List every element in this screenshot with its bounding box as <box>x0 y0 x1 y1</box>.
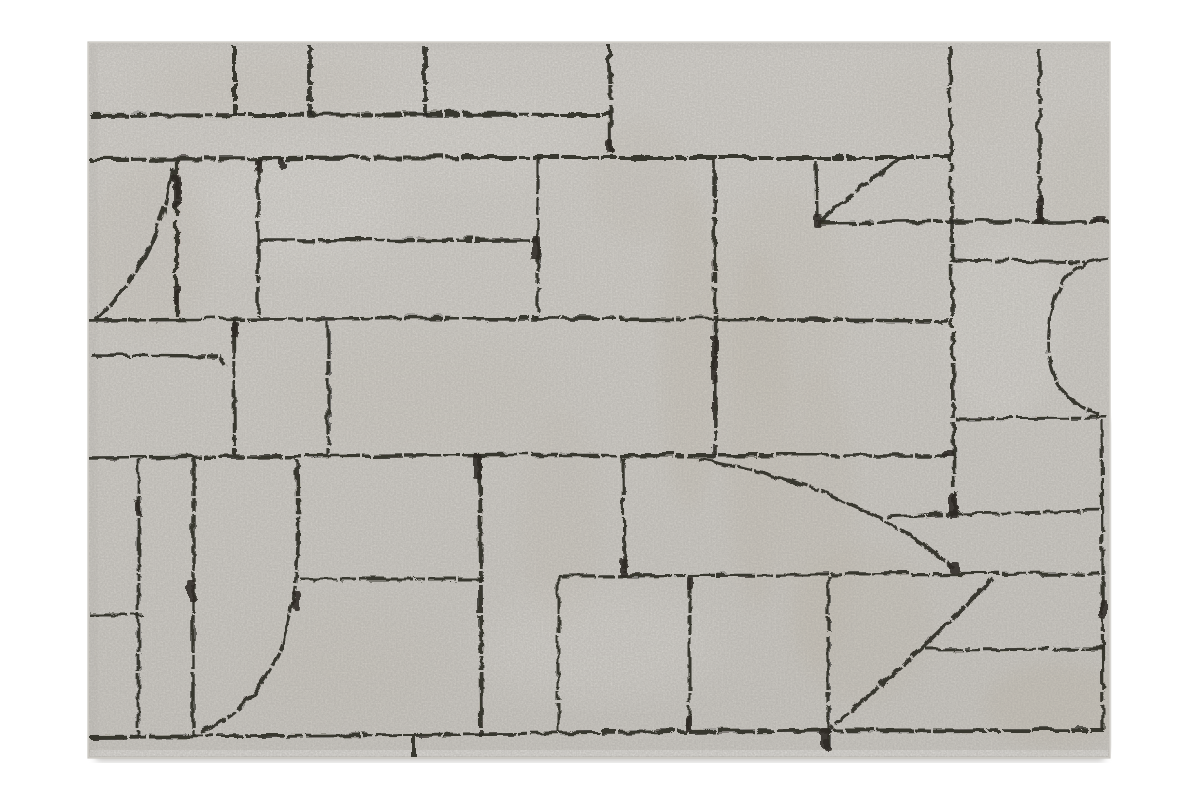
ink-blob <box>604 138 612 152</box>
ink-blob <box>811 212 820 226</box>
carpet-grain-noise <box>88 42 1110 758</box>
ink-blob <box>684 574 691 588</box>
pattern-line-second-h <box>88 156 948 158</box>
ink-blob <box>253 158 260 170</box>
rug-photo-svg <box>0 0 1200 800</box>
ink-blob <box>683 714 690 730</box>
ink-blob <box>229 320 236 336</box>
ink-blob <box>947 490 956 516</box>
pattern-line-v-814 <box>814 159 815 219</box>
ink-blob <box>1098 598 1105 618</box>
ink-blob <box>948 561 959 571</box>
ink-blob <box>1090 216 1104 222</box>
ink-blob <box>1034 194 1041 222</box>
pattern-line-top-band-h <box>88 113 608 115</box>
ink-blob <box>277 157 284 167</box>
ink-blob <box>133 498 139 514</box>
ink-blob <box>530 234 538 258</box>
ink-blob <box>171 173 179 207</box>
ink-blob <box>292 590 298 608</box>
ink-blob <box>471 452 479 478</box>
product-photo <box>0 0 1200 800</box>
ink-blob <box>171 283 178 303</box>
pattern-line-h-318 <box>88 317 948 320</box>
ink-blob <box>618 556 625 574</box>
pattern-line-short-h-238 <box>257 238 536 239</box>
ink-blob <box>709 334 716 380</box>
ink-blob <box>822 737 829 749</box>
pattern-line-v-712 <box>713 157 714 453</box>
pattern-line-v-478 <box>478 456 480 734</box>
pattern-line-v-step-608 <box>608 43 609 152</box>
ink-blob <box>941 449 952 457</box>
ink-blob <box>187 578 194 602</box>
pattern-line-h-647-right <box>923 647 1101 648</box>
